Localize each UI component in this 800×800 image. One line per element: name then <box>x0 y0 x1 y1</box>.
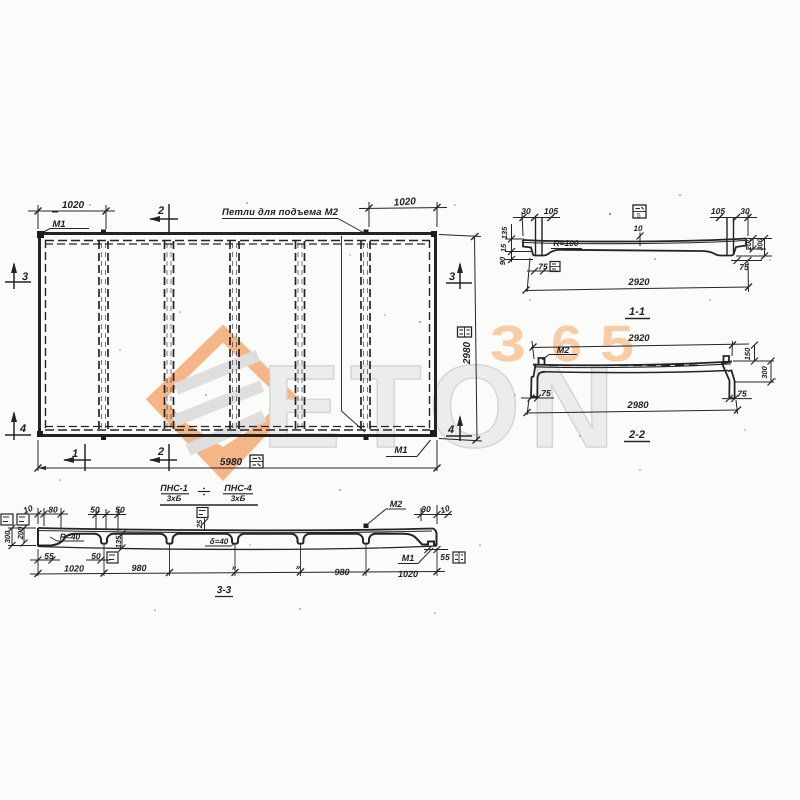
svg-text:200: 200 <box>744 237 753 251</box>
svg-text:2: 2 <box>157 446 164 458</box>
svg-text:80: 80 <box>48 505 58 515</box>
svg-text:1: 1 <box>72 448 78 460</box>
svg-text:2980: 2980 <box>462 341 473 365</box>
svg-text:ETON: ETON <box>262 341 624 473</box>
svg-text:30: 30 <box>521 206 531 216</box>
svg-text:»: » <box>296 563 301 572</box>
svg-text:300: 300 <box>3 530 12 543</box>
svg-text:55: 55 <box>44 551 54 561</box>
svg-text:150: 150 <box>743 347 752 360</box>
svg-text:ПНС-4: ПНС-4 <box>224 483 251 493</box>
svg-text:105: 105 <box>711 206 725 216</box>
svg-text:ПНС-1: ПНС-1 <box>160 483 187 493</box>
svg-text:50: 50 <box>91 551 101 561</box>
svg-text:90: 90 <box>498 256 507 265</box>
svg-text:105: 105 <box>544 206 558 216</box>
svg-text:50: 50 <box>90 505 100 515</box>
svg-text:2: 2 <box>157 205 164 217</box>
svg-text:2920: 2920 <box>627 333 650 344</box>
svg-text:М2: М2 <box>390 499 403 509</box>
svg-text:75: 75 <box>737 389 747 399</box>
svg-text:55: 55 <box>440 552 450 562</box>
svg-text:»: » <box>232 563 237 572</box>
svg-text:2920: 2920 <box>627 277 650 288</box>
svg-text:1020: 1020 <box>62 200 85 211</box>
svg-text:300: 300 <box>756 237 765 250</box>
svg-text:980: 980 <box>131 563 146 573</box>
svg-text:M1: M1 <box>394 445 407 456</box>
svg-text:1020: 1020 <box>393 196 416 209</box>
svg-text:1020: 1020 <box>398 569 418 579</box>
svg-text:2-2: 2-2 <box>628 429 645 441</box>
svg-text:1-1: 1-1 <box>629 306 645 318</box>
svg-text:30: 30 <box>740 206 750 216</box>
svg-text:135: 135 <box>114 535 123 548</box>
svg-text:135: 135 <box>500 226 509 239</box>
svg-text:300: 300 <box>760 365 769 378</box>
svg-text:3хБ: 3хБ <box>231 494 246 503</box>
svg-text:3: 3 <box>449 271 455 283</box>
svg-text:2980: 2980 <box>626 400 649 411</box>
svg-text:3-3: 3-3 <box>217 585 232 596</box>
svg-text:15: 15 <box>499 243 508 252</box>
svg-text:75: 75 <box>541 388 551 398</box>
svg-text:Петли для подъема М2: Петли для подъема М2 <box>222 207 339 218</box>
svg-text:4: 4 <box>19 423 26 435</box>
svg-text:1020: 1020 <box>64 564 84 574</box>
svg-text:3: 3 <box>22 271 28 283</box>
svg-text:5: 5 <box>637 213 641 220</box>
svg-text:80: 80 <box>421 504 431 514</box>
svg-text:R=40: R=40 <box>60 532 81 542</box>
svg-text:50: 50 <box>115 505 125 515</box>
svg-text:М1: М1 <box>402 553 415 563</box>
svg-text:5980: 5980 <box>220 457 243 468</box>
svg-text:3хБ: 3хБ <box>167 494 182 503</box>
svg-text:R=100: R=100 <box>553 238 579 248</box>
svg-text:10: 10 <box>634 224 643 233</box>
svg-text:δ=40: δ=40 <box>210 537 229 546</box>
svg-text:4: 4 <box>447 424 454 436</box>
svg-text:980: 980 <box>334 567 349 577</box>
svg-text:200: 200 <box>16 526 25 540</box>
svg-text:75: 75 <box>538 262 548 272</box>
